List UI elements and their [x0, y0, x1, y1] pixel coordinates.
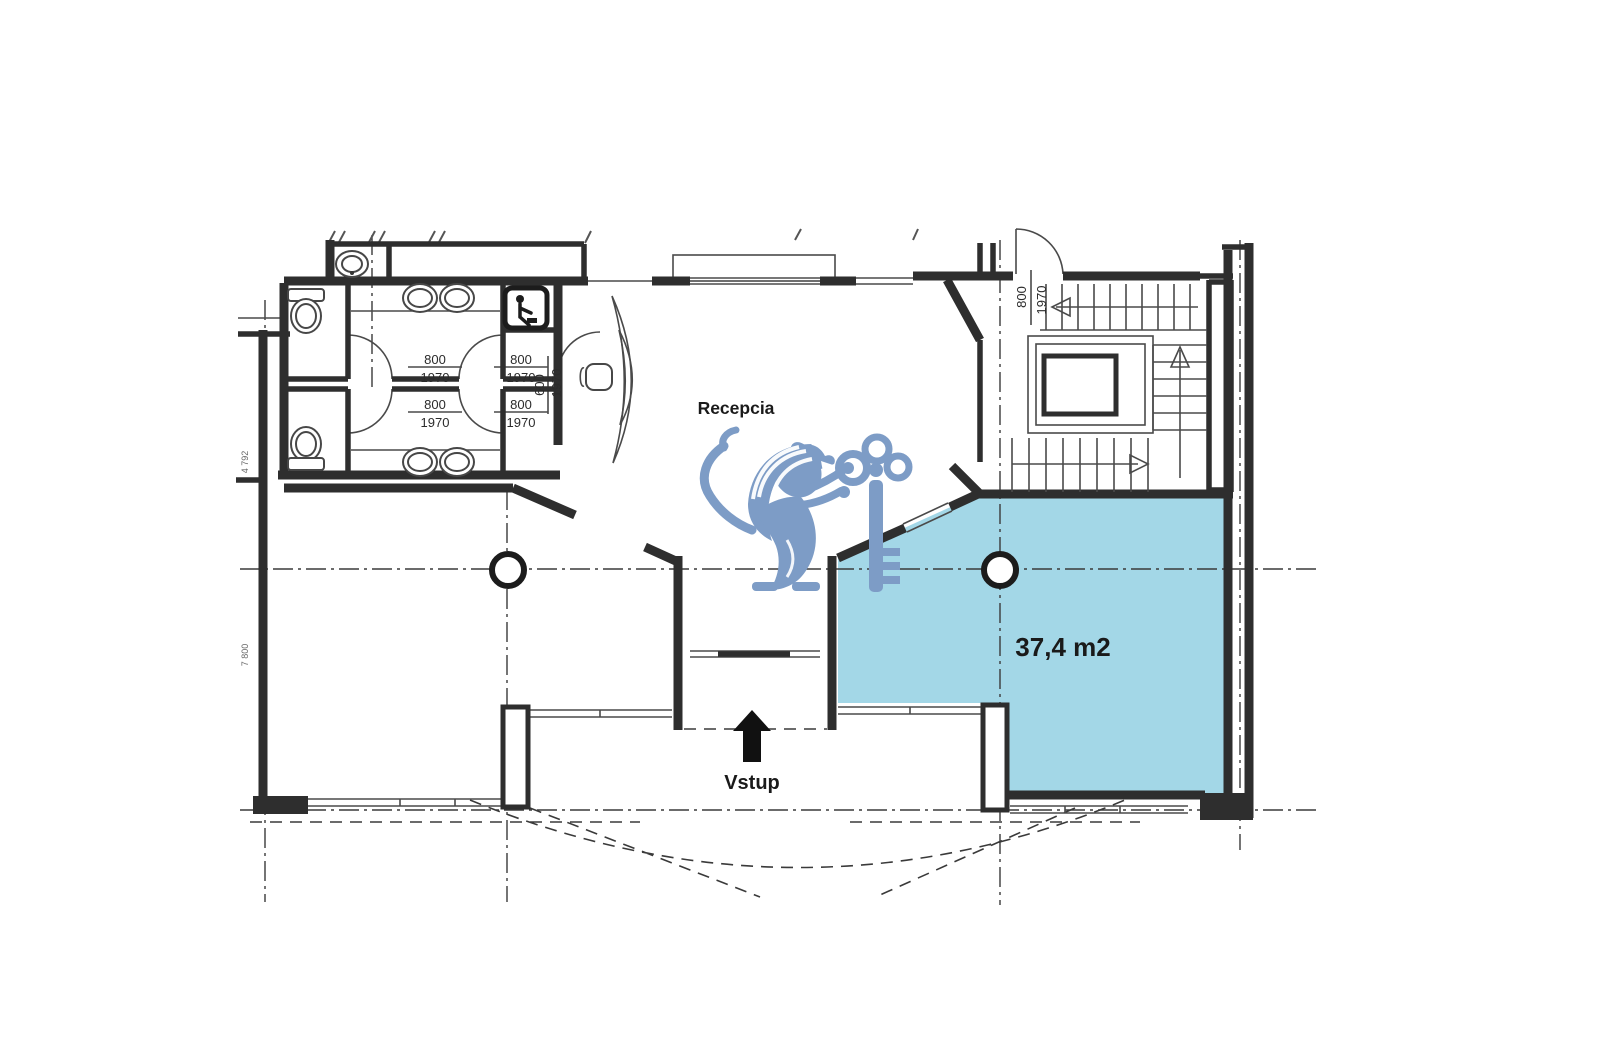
side-dimension-label: 7 800	[240, 644, 250, 667]
door-height-label: 1970	[549, 369, 564, 398]
lion-key-watermark-icon	[704, 430, 909, 592]
stair-door-height-label: 1970	[1034, 286, 1049, 315]
skylight-outline	[673, 255, 835, 281]
office-chair-icon	[580, 364, 612, 390]
pillar	[983, 705, 1007, 810]
toilet-icon	[296, 432, 316, 456]
urinal-drain	[350, 271, 354, 275]
corner-wall-block	[253, 796, 308, 814]
sink-icon	[408, 453, 432, 471]
door-height-label: 1970	[507, 415, 536, 430]
accessible-wc-icon	[505, 288, 547, 328]
stair-door-width-label: 800	[1014, 286, 1029, 308]
reception-desk	[612, 296, 632, 463]
sink-icon	[445, 453, 469, 471]
toilet-icon	[288, 458, 324, 470]
reception-label: Recepcia	[698, 398, 775, 418]
toilet-icon	[296, 304, 316, 328]
column	[984, 554, 1016, 586]
door-height-label: 1970	[421, 370, 450, 385]
urinal-icon	[342, 256, 362, 272]
door-width-label: 800	[424, 397, 446, 412]
area-label: 37,4 m2	[1015, 632, 1110, 662]
side-dimension-label: 4 792	[240, 451, 250, 474]
canopy-dashed-arc	[250, 800, 1140, 897]
door-width-label: 800	[424, 352, 446, 367]
door-height-label: 1970	[421, 415, 450, 430]
sink-icon	[445, 289, 469, 307]
sink-icon	[408, 289, 432, 307]
door-width-label: 800	[510, 397, 532, 412]
elevator-cabin	[1044, 356, 1116, 414]
entrance-label: Vstup	[724, 772, 780, 794]
wide-door-width-label: 600	[532, 374, 547, 396]
column	[492, 554, 524, 586]
floor-plan: 800 1970 800 1970 800 1970 800 1970 600 …	[0, 0, 1606, 1037]
entrance-arrow-icon	[733, 710, 771, 762]
corner-wall-block	[1200, 793, 1253, 820]
pillar	[503, 707, 528, 807]
floor-plan-page: 800 1970 800 1970 800 1970 800 1970 600 …	[0, 0, 1606, 1037]
door-width-label: 800	[510, 352, 532, 367]
